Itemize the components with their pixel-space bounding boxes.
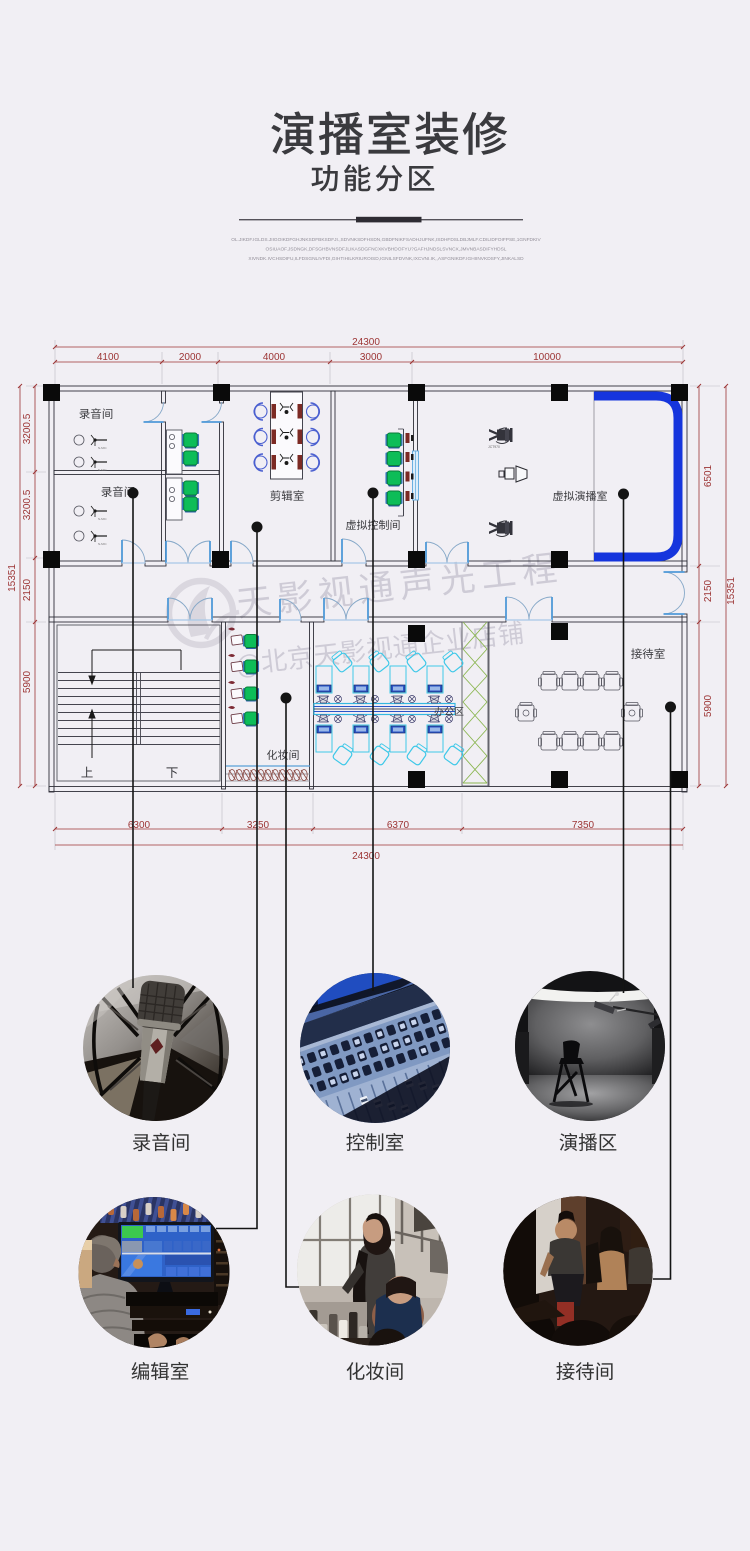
svg-text:3200.5: 3200.5 xyxy=(22,413,33,444)
svg-text:N-MIC: N-MIC xyxy=(98,542,107,546)
svg-text:6501: 6501 xyxy=(703,464,714,487)
svg-text:4100: 4100 xyxy=(97,352,120,363)
svg-text:2150: 2150 xyxy=(22,578,33,601)
svg-text:N-MIC: N-MIC xyxy=(98,517,107,521)
svg-text:2000: 2000 xyxy=(179,352,202,363)
svg-text:N-MIC: N-MIC xyxy=(98,446,107,450)
svg-text:15351: 15351 xyxy=(726,577,737,605)
svg-text:7350: 7350 xyxy=(572,820,595,831)
svg-text:6300: 6300 xyxy=(128,820,151,831)
svg-text:6370: 6370 xyxy=(387,820,410,831)
svg-text:5900: 5900 xyxy=(703,694,714,717)
svg-text:2150: 2150 xyxy=(703,579,714,602)
svg-text:24300: 24300 xyxy=(352,851,380,862)
svg-text:XIVNDK.IVCHSDIFU,ILFDSGNLIVFDI: XIVNDK.IVCHSDIFU,ILFDSGNLIVFDI,GIHTIHILK… xyxy=(248,256,524,262)
svg-text:4000: 4000 xyxy=(263,352,286,363)
svg-text:3000: 3000 xyxy=(360,352,383,363)
svg-text:15351: 15351 xyxy=(7,564,18,592)
svg-text:3250: 3250 xyxy=(247,820,270,831)
svg-text:24300: 24300 xyxy=(352,337,380,348)
svg-text:3200.5: 3200.5 xyxy=(22,489,33,520)
svg-text:10000: 10000 xyxy=(533,352,561,363)
svg-text:JCT970: JCT970 xyxy=(488,445,500,449)
svg-text:OL.JIKDF.IGLDS.JIIGOIKDFGHJNKS: OL.JIKDF.IGLDS.JIIGOIKDFGHJNKSDFBKSDFJI.… xyxy=(231,237,541,243)
svg-text:OSIUAOF.JSDNGK,DFSGHBVNSDFJLIK: OSIUAOF.JSDNGK,DFSGHBVNSDFJLIKASDGFNCXKV… xyxy=(266,247,507,253)
svg-text:N-MIC: N-MIC xyxy=(98,468,107,472)
svg-text:5900: 5900 xyxy=(22,670,33,693)
